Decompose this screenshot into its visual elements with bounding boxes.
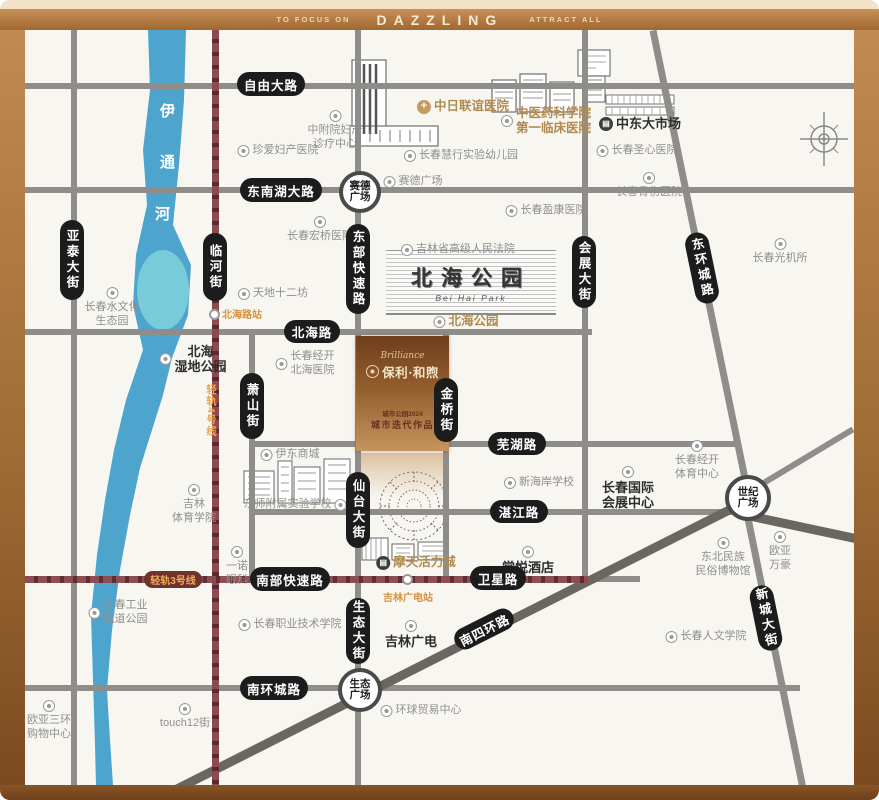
poi-dongshi-school: 东师附属实验学校 [244,498,347,512]
ring-icon [666,631,678,643]
road-badge-nanbu-kuaisulu: 南部快速路 [250,567,330,591]
poi-yingkang-hospital: 长春盈康医院 [506,204,587,218]
ring-icon [717,537,729,549]
ring-icon [159,353,171,365]
poi-water-culture-park: 长春水文化生态园 [85,287,140,328]
ring-icon [501,115,513,127]
ring-icon [335,499,347,511]
ring-icon [622,466,634,478]
station-label-beihailu-station: 北海路站 [222,306,262,321]
road-badge-wuhu-lu: 芜湖路 [488,432,546,455]
poi-zhongdong-market: ▤中东大市场 [599,116,681,131]
project-brand-row: 保利·和煦 [366,362,439,381]
road-xiaoshan-jie [249,332,255,579]
poi-intl-convention-center: 长春国际会展中心 [602,466,654,510]
poi-industry-rail-park: 长春工业轨道公园 [89,599,148,626]
poi-yidong-mall: 伊东商城 [261,448,320,462]
project-script-text: Brilliance [381,351,425,361]
station-dot-jilinguangdian-station [402,574,413,585]
ring-icon [276,358,288,370]
poi-zhongri-hospital: +中日联谊医院 [417,99,509,114]
poi-saide-plaza-label: 赛德广场 [384,175,443,189]
ring-icon [179,703,191,715]
ring-icon [238,288,250,300]
poi-vocational-college: 长春职业技术学院 [239,618,342,632]
ring-icon [691,440,703,452]
poi-jingkai-beihai-hospital: 长春经开北海医院 [276,350,335,377]
river-label-char: 河 [155,203,170,224]
ring-icon [522,546,534,558]
ring-icon [231,546,243,558]
poi-huixing-kindergarten: 长春慧行实验幼儿园 [404,149,518,163]
ring-icon [597,145,609,157]
header-band: TO FOCUS ON DAZZLING ATTRACT ALL [0,9,879,30]
poi-jilin-guangdian: 吉林广电 [385,620,437,649]
poi-hongqiao-hospital: 长春宏桥医院 [287,216,353,244]
ring-icon [89,607,101,619]
poi-motian-vitality-city: ▤摩天活力城 [376,555,456,570]
poi-shengxin-hospital: 长春圣心医院 [597,144,678,158]
poi-guangjisuo: 长春光机所 [753,238,808,266]
poi-beihai-park-label: 北海公园 [433,314,498,329]
poi-xinhaian-school: 新海岸学校 [504,476,574,490]
poi-beihai-wetland-park: 北海湿地公园 [159,344,226,374]
poi-global-trade-center: 环球贸易中心 [381,704,462,718]
station-label-jilinguangdian-station: 吉林广电站 [383,589,433,604]
ring-icon [504,477,516,489]
project-brand-name: 保利·和煦 [382,362,439,381]
poi-renwen-college: 长春人文学院 [666,630,747,644]
road-badge-shengtai-dajie: 生态大街 [346,598,370,664]
river-label-char: 通 [160,151,175,172]
ring-icon [643,172,655,184]
location-map: 伊 通 河 北海公园 Bei Hai Park [0,0,879,800]
poi-zhongyiyao-hospital: 中医药科学院第一临床医院 [501,106,591,136]
poi-jilin-sport-college: 吉林体育学院 [172,484,216,525]
road-yatai-dajie [71,30,77,785]
road-badge-beihai-lu: 北海路 [284,320,340,343]
ring-icon [188,484,200,496]
poi-gushang-hospital: 长春骨伤医院 [616,172,682,200]
park-calligraphy: 北海公园 [411,262,531,292]
compass-icon [798,110,850,168]
poi-high-court: 吉林省高级人民法院 [401,243,515,257]
poi-jingkai-sports-center: 长春经开体育中心 [675,440,719,481]
road-badge-weixing-lu: 卫星路 [470,566,526,590]
road-badge-jinqiao-jie: 金桥街 [434,378,458,442]
dark-icon: ▤ [376,556,390,570]
ring-icon [384,176,396,188]
poi-yinuo-eye-clinic: 一诺眼科 [226,546,248,587]
ring-icon [774,238,786,250]
ring-icon [774,531,786,543]
header-left-text: TO FOCUS ON [277,15,351,24]
frame-top: TO FOCUS ON DAZZLING ATTRACT ALL [0,0,879,30]
ring-icon [401,244,413,256]
map-canvas: 伊 通 河 北海公园 Bei Hai Park [0,0,879,800]
dark-icon: ▤ [599,117,613,131]
road-badge-huizhan-dajie: 会展大街 [572,236,596,308]
poi-touch12-street: touch12街 [160,703,210,731]
road-nanhuan-chenglu [25,685,800,691]
road-badge-zhanjiang-lu: 湛江路 [490,500,548,523]
road-badge-dongnanhu-dalu: 东南湖大路 [240,178,322,202]
brand-logo-icon [366,365,379,378]
road-badge-yatai-dajie: 亚泰大街 [60,220,84,300]
header-title: DAZZLING [376,12,503,28]
project-tagline: 城市迭代作品 [371,418,434,431]
road-badge-xiaoshan-jie: 萧山街 [240,373,264,439]
project-tagline-small: 城市公园2024 [382,408,422,418]
plaza-shiji-plaza: 世纪广场 [725,475,771,521]
header-right-text: ATTRACT ALL [529,15,602,24]
river-label-char: 伊 [160,100,175,121]
road-badge-xiantai-dajie: 仙台大街 [346,472,370,548]
frame-top-strip [0,0,879,9]
plaza-shengtai-plaza: 生态广场 [338,668,382,712]
road-badge-dongbu-kuaisulu: 东部快速路 [346,224,370,314]
cross-icon: + [417,100,431,114]
frame-bottom [0,785,879,800]
rail-label-rail-line-4: 轻轨4号线 [204,384,219,437]
poi-zhenai-hospital: 珍爱妇产医院 [238,144,319,158]
ring-icon [381,705,393,717]
poi-folk-museum: 东北民族民俗博物馆 [696,537,751,578]
ring-icon [314,216,326,228]
rail-label-rail-line-3: 轻轨3号线 [144,571,202,588]
poi-ouya-wanhao: 欧亚万豪 [769,531,791,572]
ring-icon [404,150,416,162]
road-badge-nanhuan-chenglu: 南环城路 [240,676,308,700]
poi-tiandi-12fang: 天地十二坊 [238,287,308,301]
frame-right [854,30,879,785]
road-ziyou-dalu [25,83,855,89]
road-badge-ziyou-dalu: 自由大路 [237,72,305,96]
ring-icon [329,110,341,122]
station-dot-beihailu-station [209,309,220,320]
ring-icon [238,145,250,157]
ring-icon [433,316,445,328]
ring-icon [43,700,55,712]
ring-icon [261,449,273,461]
frame-left [0,30,25,785]
beihai-park-illustration: 北海公园 Bei Hai Park [386,250,556,315]
ring-icon [106,287,118,299]
ring-icon [405,620,417,632]
plaza-saide-plaza: 赛德广场 [339,171,381,213]
ring-icon [239,619,251,631]
ring-icon [506,205,518,217]
park-english-label: Bei Hai Park [435,293,506,303]
road-badge-linhe-jie: 临河街 [203,233,227,301]
poi-ouya-sanhuan-mall: 欧亚三环购物中心 [27,700,71,741]
